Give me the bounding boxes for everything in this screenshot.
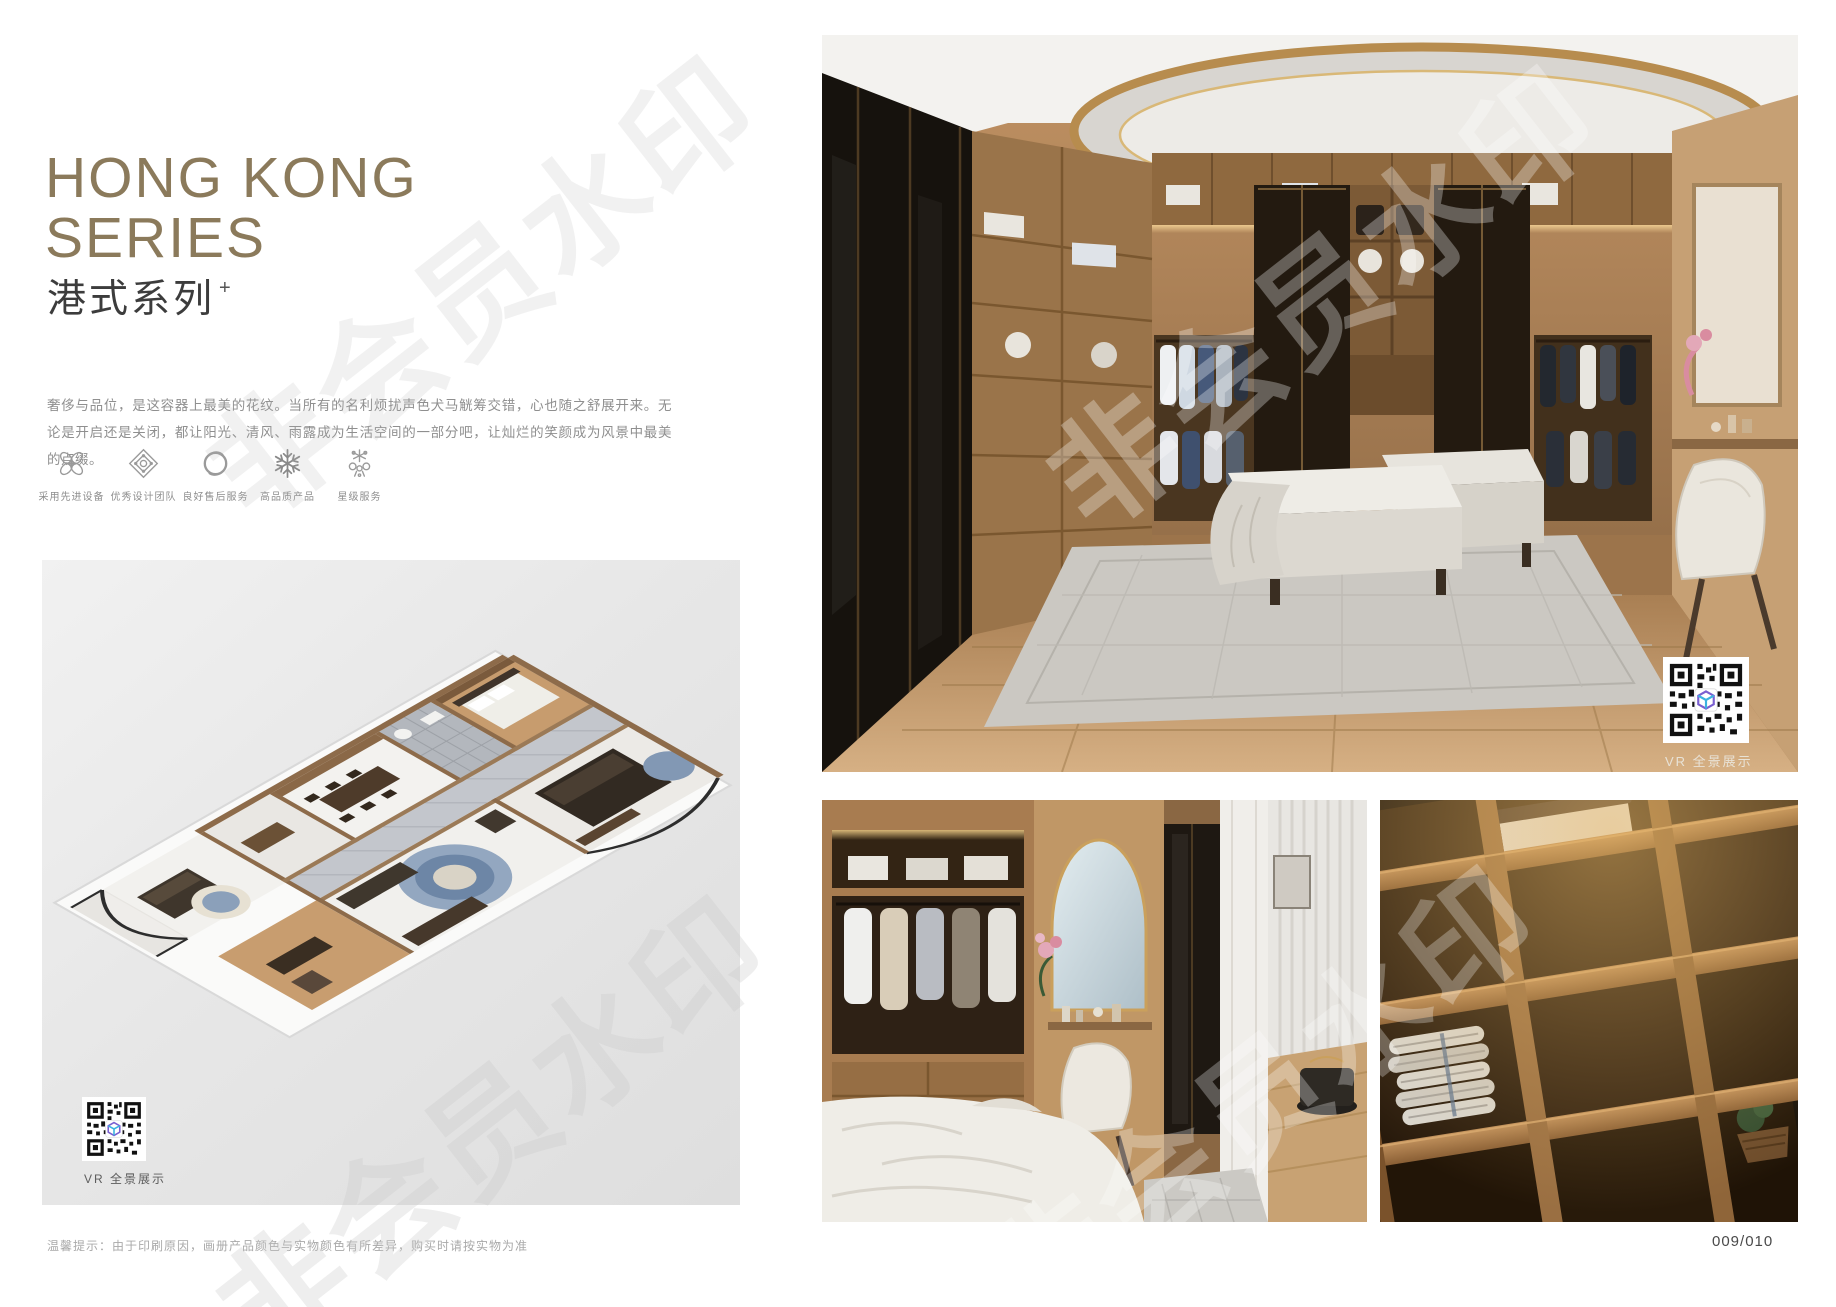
feature-label: 采用先进设备 — [39, 488, 105, 503]
catalog-page: HONG KONG SERIES 港式系列+ 奢侈与品位，是这容器上最美的花纹。… — [0, 0, 1836, 1307]
hero-image: VR 全景展示 — [822, 35, 1798, 772]
feature-label: 良好售后服务 — [183, 488, 249, 503]
print-disclaimer: 温馨提示：由于印刷原因，画册产品颜色与实物颜色有所差异，购买时请按实物为准 — [47, 1237, 528, 1254]
ring-icon — [198, 446, 233, 481]
page-title: HONG KONG SERIES — [45, 148, 418, 268]
medal-icon — [342, 446, 377, 481]
floorplan-render — [42, 560, 740, 1205]
page-number: 009/010 — [1712, 1233, 1773, 1250]
vr-panorama-label: VR 全景展示 — [1665, 751, 1753, 770]
dressing-image — [822, 800, 1367, 1222]
feature-after-sales: 良好售后服务 — [186, 446, 245, 503]
qr-code — [1663, 657, 1749, 743]
pinwheel-icon — [54, 446, 89, 481]
rosette-icon — [126, 446, 161, 481]
snowflake-icon — [270, 446, 305, 481]
shelf-closeup-render — [1380, 800, 1798, 1222]
page-title-line1: HONG KONG — [45, 148, 418, 208]
subtitle-plus: + — [219, 277, 234, 299]
feature-star-service: 星级服务 — [330, 446, 389, 503]
feature-label: 高品质产品 — [260, 488, 315, 503]
subtitle-text: 港式系列 — [47, 278, 215, 321]
dressing-area-render — [822, 800, 1367, 1222]
page-title-line2: SERIES — [45, 208, 418, 268]
qr-code — [82, 1097, 146, 1161]
page-subtitle: 港式系列+ — [47, 268, 234, 324]
feature-row: 采用先进设备 优秀设计团队 良好售后服务 — [42, 446, 389, 503]
shelf-image — [1380, 800, 1798, 1222]
feature-advanced-equipment: 采用先进设备 — [42, 446, 101, 503]
walk-in-closet-render — [822, 35, 1798, 772]
feature-label: 星级服务 — [338, 488, 382, 503]
feature-quality-product: 高品质产品 — [258, 446, 317, 503]
feature-design-team: 优秀设计团队 — [114, 446, 173, 503]
feature-label: 优秀设计团队 — [111, 488, 177, 503]
vr-panorama-label: VR 全景展示 — [84, 1170, 166, 1187]
floorplan-image: VR 全景展示 — [42, 560, 740, 1205]
